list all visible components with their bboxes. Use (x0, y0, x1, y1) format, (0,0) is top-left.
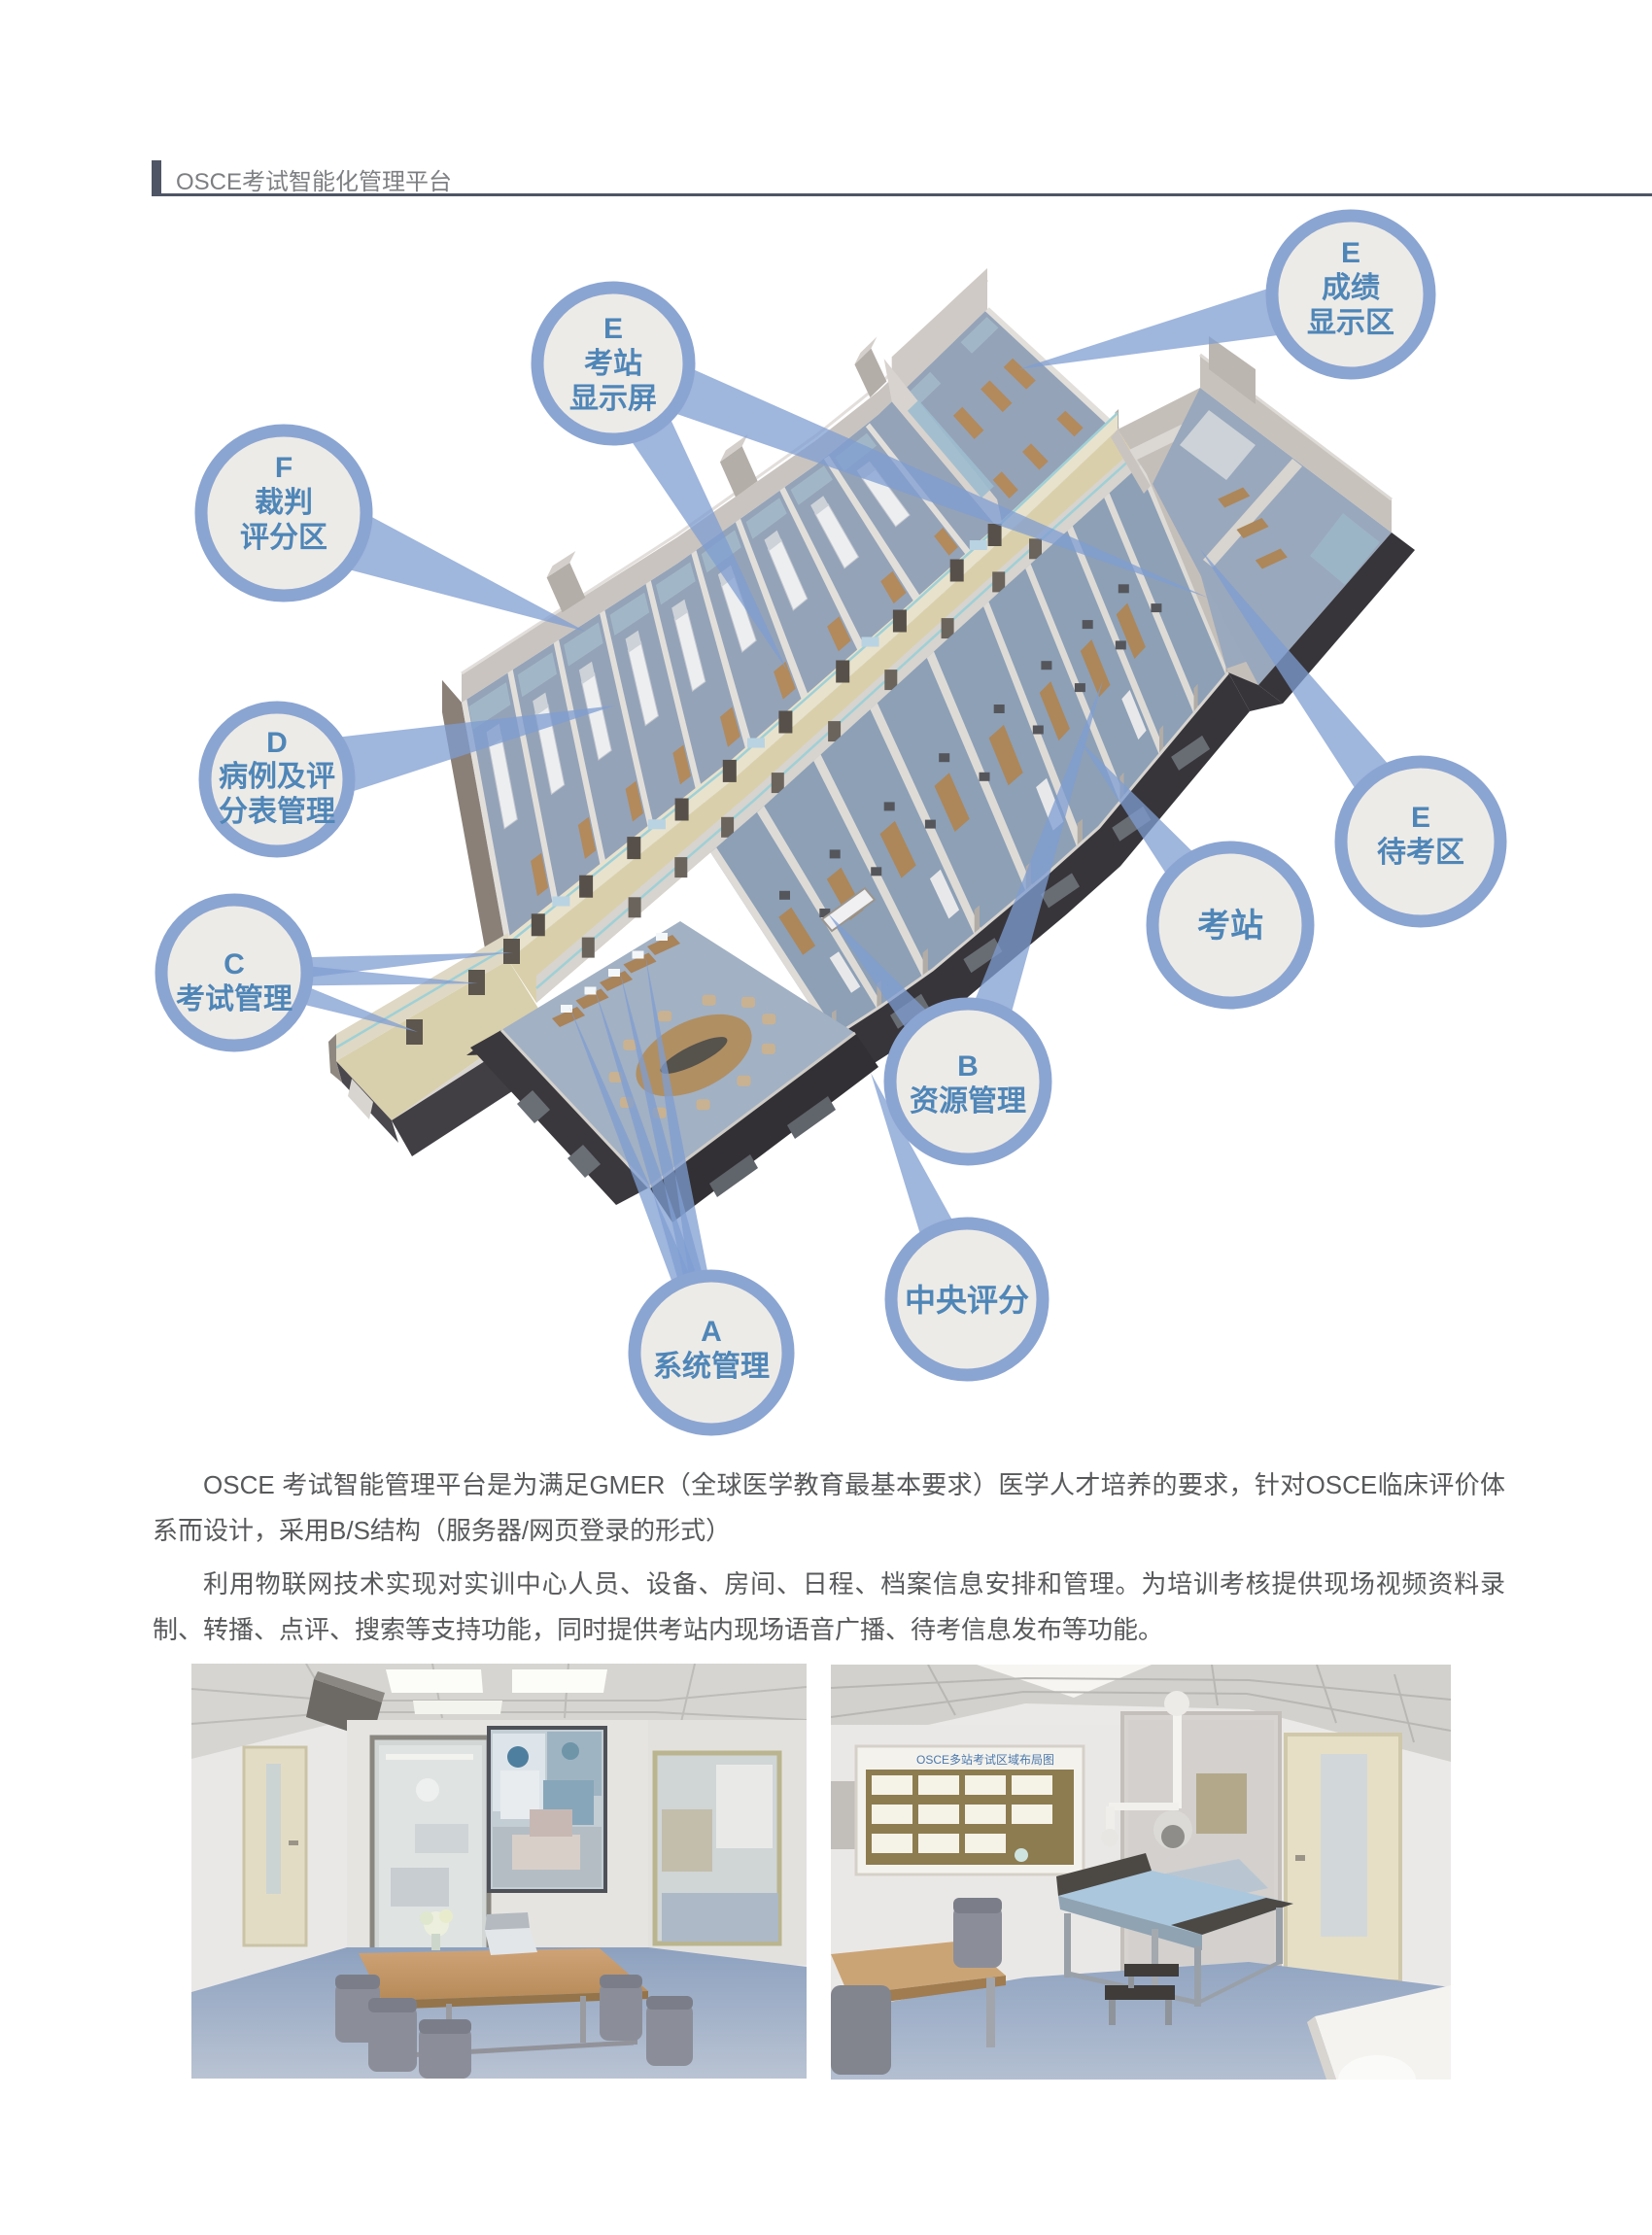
svg-text:中央评分: 中央评分 (905, 1283, 1029, 1318)
svg-text:E: E (603, 313, 623, 345)
svg-text:D: D (266, 727, 288, 759)
svg-text:B: B (957, 1050, 979, 1083)
svg-text:A: A (701, 1316, 722, 1348)
svg-text:E: E (1411, 802, 1430, 834)
svg-text:E: E (1341, 237, 1360, 269)
svg-text:考站: 考站 (1197, 908, 1263, 945)
svg-text:成绩: 成绩 (1322, 272, 1380, 304)
svg-text:裁判: 裁判 (255, 487, 313, 519)
svg-text:C: C (224, 948, 245, 980)
svg-text:病例及评: 病例及评 (219, 761, 335, 793)
svg-text:分表管理: 分表管理 (219, 796, 335, 828)
svg-text:资源管理: 资源管理 (910, 1085, 1026, 1117)
svg-text:考试管理: 考试管理 (176, 983, 293, 1015)
svg-text:显示区: 显示区 (1307, 307, 1394, 339)
svg-text:F: F (275, 452, 293, 484)
svg-text:显示屏: 显示屏 (569, 383, 657, 415)
svg-text:考站: 考站 (584, 348, 642, 380)
svg-text:评分区: 评分区 (240, 522, 327, 554)
svg-text:系统管理: 系统管理 (653, 1350, 770, 1383)
svg-text:OSCE多站考试区域布局图: OSCE多站考试区域布局图 (916, 1752, 1054, 1767)
svg-text:待考区: 待考区 (1377, 837, 1464, 869)
